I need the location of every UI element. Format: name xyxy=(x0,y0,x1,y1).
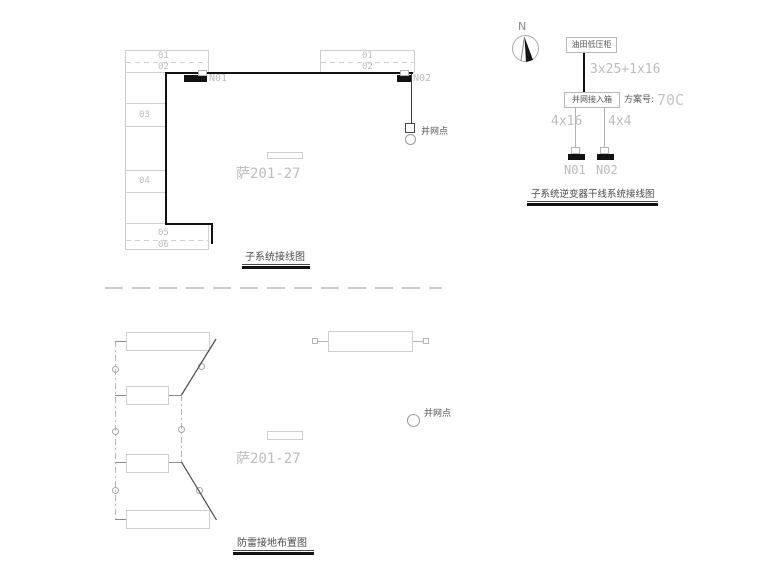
ground-test-point xyxy=(198,363,205,370)
inverter-n02-block xyxy=(397,75,411,82)
grid-point-circle-bottom xyxy=(407,414,420,427)
terminal-left-label: N01 xyxy=(564,164,586,176)
cad-drawing-canvas: 01 02 03 04 05 06 01 02 N01 N02 并网点 萨201… xyxy=(0,0,760,570)
lightning-grounding-title: 防雷接地布置图 xyxy=(237,539,307,549)
pile-number: 萨201-27 xyxy=(236,167,301,181)
trunk-line-stub xyxy=(211,223,213,244)
ground-test-point xyxy=(112,366,119,373)
legend-rect-bottom xyxy=(267,431,303,440)
column-row-line xyxy=(125,103,167,104)
main-feeder-line xyxy=(583,53,585,92)
row-label-05: 05 xyxy=(158,229,169,238)
equipment-pin-right xyxy=(423,338,429,344)
ground-rect-mid2 xyxy=(126,454,169,473)
inverter-n01-label: N01 xyxy=(209,74,227,84)
strip-label-02: 02 xyxy=(362,63,373,72)
scheme-number: 70C xyxy=(657,93,684,108)
source-cabinet-label: 油田低压柜 xyxy=(567,38,616,52)
equipment-rect xyxy=(328,331,413,352)
title1-underline-thin xyxy=(242,264,310,265)
building-left-column xyxy=(125,72,167,224)
title1-underline-thick xyxy=(242,266,310,269)
inverter-n01-block xyxy=(184,75,207,82)
main-cable-label: 3x25+1x16 xyxy=(590,63,660,76)
ground-rect-bottom xyxy=(126,510,210,529)
terminal-right-block xyxy=(597,154,614,160)
grid-point-circle xyxy=(405,134,416,145)
column-row-line xyxy=(125,126,167,127)
inverter-n01-terminal xyxy=(198,70,207,76)
row-label-01: 01 xyxy=(158,52,169,61)
ground-connector xyxy=(115,462,126,463)
branch-left-label: 4x16 xyxy=(551,115,582,128)
compass-circle xyxy=(512,35,539,62)
row-label-06: 06 xyxy=(158,241,169,250)
strip-label-01: 01 xyxy=(362,52,373,61)
ground-connector xyxy=(115,341,126,342)
equipment-pin-left xyxy=(312,338,318,344)
equipment-pin-left-line xyxy=(317,341,328,342)
ground-connector xyxy=(169,462,182,463)
overlay-lines-layer xyxy=(0,0,760,570)
ground-test-point xyxy=(112,428,119,435)
terminal-left-square xyxy=(571,147,580,154)
title2-underline-thin xyxy=(527,201,658,202)
separator-dashed-line xyxy=(105,287,442,289)
grid-drop-line xyxy=(411,74,412,124)
ground-connector xyxy=(115,519,126,520)
ground-connector xyxy=(115,395,126,396)
branch-line-right xyxy=(604,108,605,148)
ground-test-point xyxy=(112,487,119,494)
legend-rect xyxy=(267,152,303,159)
column-row-line xyxy=(125,192,167,193)
pile-number-bottom: 萨201-27 xyxy=(236,452,301,466)
grid-point-label: 并网点 xyxy=(421,128,448,137)
inverter-trunk-title: 子系统逆变器干线系统接线图 xyxy=(531,190,655,200)
ground-test-point xyxy=(178,426,185,433)
ground-connector xyxy=(169,395,182,396)
terminal-right-label: N02 xyxy=(596,164,618,176)
inverter-n02-terminal xyxy=(400,70,409,76)
title3-underline-thin xyxy=(233,550,314,551)
row-label-03: 03 xyxy=(139,111,150,120)
branch-right-label: 4x4 xyxy=(608,115,631,128)
subsystem-wiring-title: 子系统接线图 xyxy=(245,253,305,263)
title2-underline-thick xyxy=(527,203,658,206)
trunk-line-bottom xyxy=(165,223,213,225)
ground-test-point xyxy=(196,487,203,494)
ground-rect-top xyxy=(126,332,210,351)
row-label-02: 02 xyxy=(158,63,169,72)
ground-rect-mid1 xyxy=(126,386,169,405)
grid-point-label-bottom: 并网点 xyxy=(424,410,451,419)
access-box: 并网接入箱 xyxy=(564,92,620,108)
title3-underline-thick xyxy=(233,552,314,555)
trunk-line-left xyxy=(165,72,167,225)
row-label-04: 04 xyxy=(139,177,150,186)
grid-point-square xyxy=(405,123,415,133)
source-cabinet-box: 油田低压柜 xyxy=(566,37,617,53)
column-row-line xyxy=(125,170,167,171)
scheme-label: 方案号: xyxy=(624,96,654,105)
north-label: N xyxy=(518,21,526,32)
terminal-right-square xyxy=(600,147,609,154)
inverter-n02-label: N02 xyxy=(413,74,431,84)
access-box-label: 并网接入箱 xyxy=(565,93,619,107)
terminal-left-block xyxy=(568,154,585,160)
